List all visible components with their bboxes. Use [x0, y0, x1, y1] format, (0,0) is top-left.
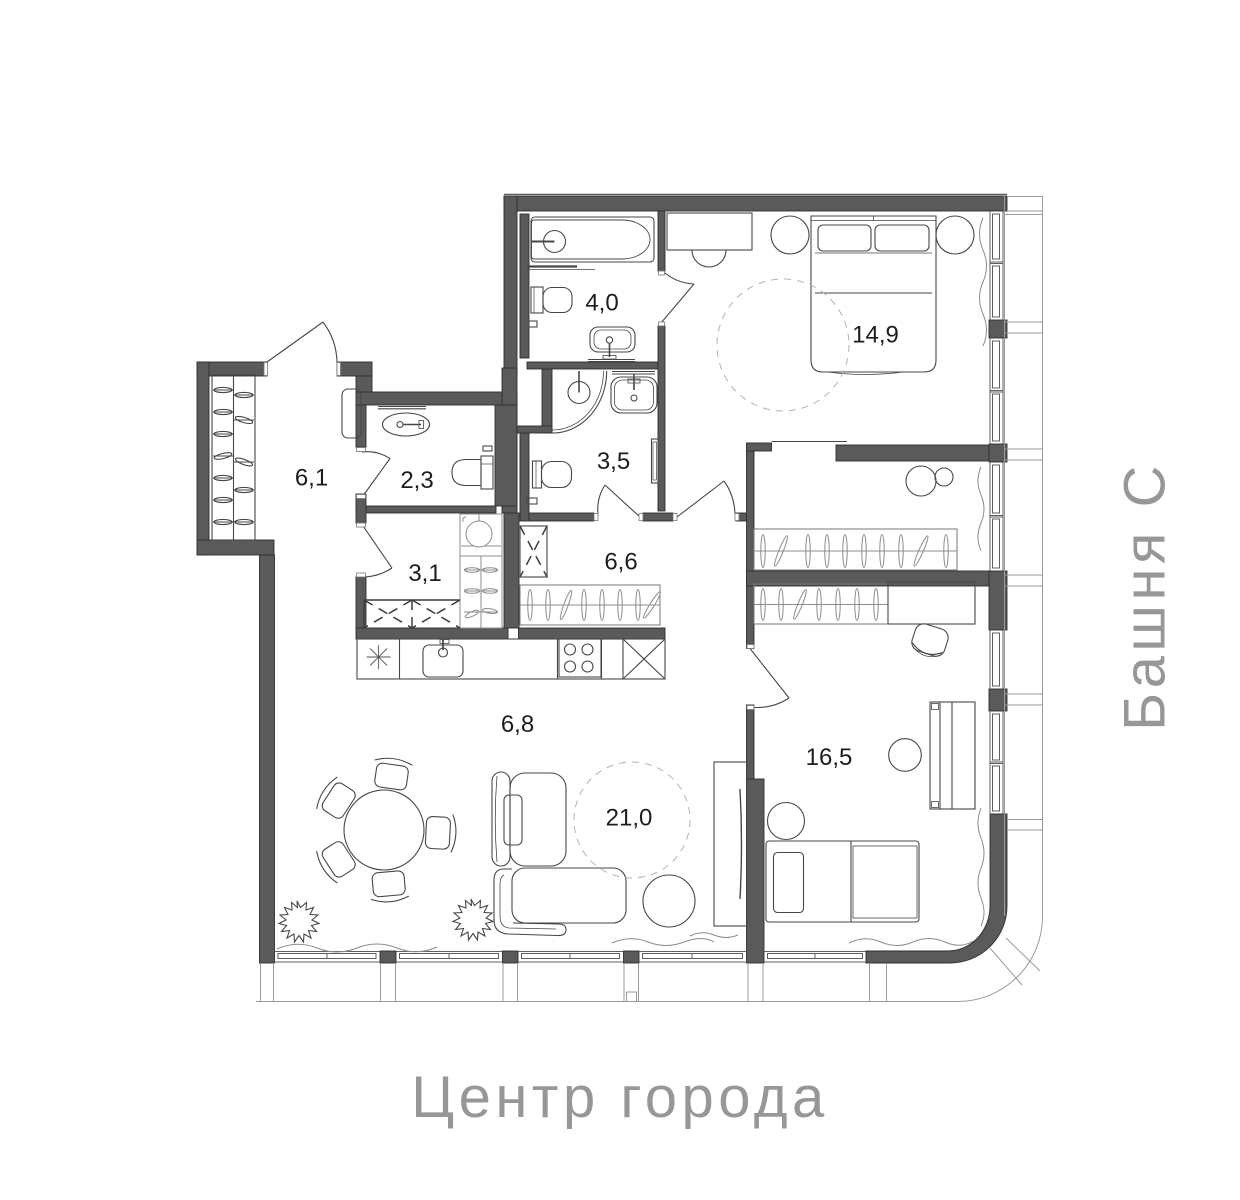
svg-text:2,3: 2,3 — [400, 467, 433, 494]
svg-text:4,0: 4,0 — [585, 290, 618, 317]
svg-text:21,0: 21,0 — [606, 805, 653, 832]
svg-text:16,5: 16,5 — [806, 744, 853, 771]
svg-text:Центр города: Центр города — [411, 1065, 829, 1130]
svg-text:6,6: 6,6 — [604, 549, 637, 576]
svg-text:3,5: 3,5 — [597, 448, 630, 475]
svg-text:6,8: 6,8 — [501, 711, 534, 738]
svg-text:Башня С: Башня С — [1113, 461, 1178, 731]
svg-text:14,9: 14,9 — [852, 322, 899, 349]
svg-text:6,1: 6,1 — [295, 465, 328, 492]
svg-text:3,1: 3,1 — [408, 560, 441, 587]
